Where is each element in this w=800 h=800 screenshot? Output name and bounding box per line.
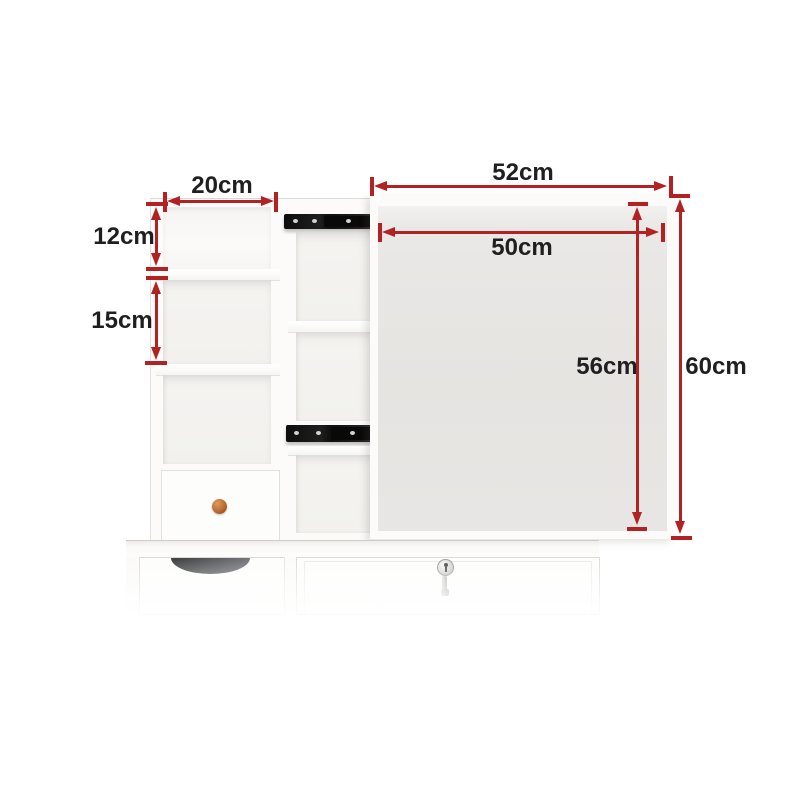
dimension-line [636, 218, 639, 514]
product-dimension-diagram: 20cm 12cm 15cm 52cm 50cm [0, 0, 800, 800]
drawer-slide-rail-top [284, 214, 372, 229]
rail-screw-hole [316, 431, 321, 435]
rail-screw-hole [312, 219, 317, 223]
dimension-tick [274, 192, 278, 212]
dimension-label: 12cm [93, 223, 154, 251]
dimension-arrowhead [654, 181, 667, 191]
left-column-cubby-bottom [163, 375, 271, 464]
middle-column-cubby-1 [296, 232, 372, 321]
left-column-cubby-middle [163, 280, 271, 364]
dimension-label: 60cm [685, 353, 746, 381]
dimension-tick [627, 527, 647, 531]
drawer-knob [212, 499, 227, 514]
dimension-line [679, 210, 682, 523]
dimension-line [178, 200, 263, 203]
dimension-line [386, 185, 655, 188]
dimension-label: 15cm [91, 307, 152, 335]
dimension-tick [671, 536, 692, 540]
rail-screw-hole [350, 431, 355, 435]
dimension-arrowhead [646, 227, 659, 237]
photo-fade-out [0, 556, 800, 646]
dimension-tick [146, 267, 168, 271]
dimension-label: 50cm [491, 234, 552, 262]
dimension-tick [628, 202, 648, 206]
middle-column-cubby-3 [296, 455, 372, 533]
dimension-line [155, 292, 158, 349]
dimension-tick [661, 223, 665, 242]
rail-screw-hole [294, 431, 299, 435]
dimension-tick [146, 276, 168, 280]
dimension-corner-bracket [669, 194, 690, 198]
dimension-label: 52cm [492, 159, 553, 187]
middle-column-cubby-2 [296, 332, 372, 421]
dimension-line [394, 231, 647, 234]
dimension-line [155, 218, 158, 255]
rail-screw-hole [346, 219, 351, 223]
dimension-tick [145, 361, 167, 365]
dimension-tick [146, 202, 168, 206]
drawer-slide-rail-bottom [286, 425, 372, 442]
dimension-label: 20cm [191, 172, 252, 200]
rail-screw-hole [293, 219, 298, 223]
dimension-label: 56cm [576, 353, 637, 381]
left-column-cubby-top [163, 207, 271, 269]
dimension-tick [669, 176, 673, 196]
